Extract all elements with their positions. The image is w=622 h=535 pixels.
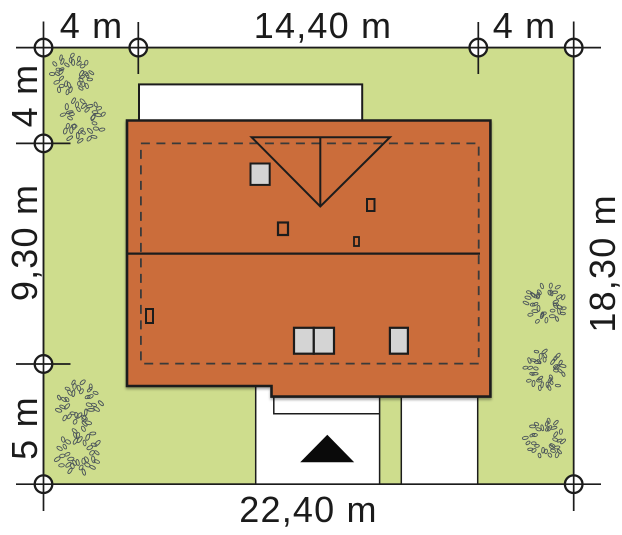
svg-text:4 m: 4 m: [4, 64, 45, 128]
svg-text:14,40 m: 14,40 m: [254, 5, 392, 46]
svg-text:4 m: 4 m: [60, 5, 124, 46]
svg-text:4 m: 4 m: [493, 5, 557, 46]
svg-text:18,30 m: 18,30 m: [582, 194, 622, 332]
svg-text:5 m: 5 m: [4, 396, 45, 460]
svg-text:9,30 m: 9,30 m: [4, 184, 45, 301]
svg-text:22,40 m: 22,40 m: [239, 489, 377, 530]
